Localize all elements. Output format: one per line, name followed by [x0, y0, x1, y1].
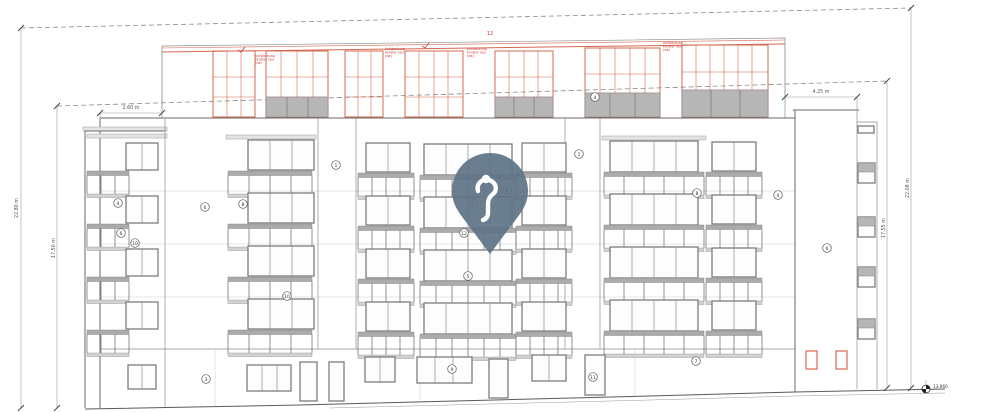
reference-marker: 10 — [283, 292, 292, 301]
reference-marker: 6 — [201, 203, 210, 212]
svg-text:8: 8 — [242, 202, 245, 208]
wing-floor-row — [87, 249, 158, 304]
dimension-label: 4.25 m — [813, 89, 830, 95]
reference-dashed-lines — [21, 8, 911, 106]
svg-text:4: 4 — [594, 95, 597, 101]
svg-text:5: 5 — [467, 274, 470, 280]
svg-text:10: 10 — [132, 241, 138, 247]
reference-marker: 9 — [448, 365, 457, 374]
new-door — [836, 351, 847, 369]
svg-text:7: 7 — [695, 359, 698, 365]
facade-floor-row — [228, 299, 762, 361]
dimension-label: 17.50 m — [51, 238, 57, 258]
reference-marker: 8 — [693, 189, 702, 198]
ground-floor — [128, 355, 605, 401]
svg-text:11: 11 — [590, 375, 596, 381]
svg-text:6: 6 — [204, 205, 207, 211]
reference-marker: 8 — [239, 200, 248, 209]
svg-text:6: 6 — [120, 231, 123, 237]
red-note-line: (rot) — [255, 61, 262, 65]
red-note-line: (rot) — [663, 48, 670, 52]
dimension-roof-setback-left: 2.60 m — [97, 50, 165, 119]
existing-windows-behind — [266, 90, 768, 117]
new-door — [806, 351, 817, 369]
elevation-sheet: 12 AufstockungFenster neu(rot)Aufstockun… — [0, 0, 981, 412]
svg-text:6: 6 — [826, 246, 829, 252]
terrain — [85, 389, 945, 409]
dimension-right-inner: 17.55 m — [881, 78, 890, 391]
red-note-line: (rot) — [385, 54, 392, 58]
svg-text:10: 10 — [284, 294, 290, 300]
dimension-left-outer: 22.80 m — [14, 25, 24, 411]
svg-text:4: 4 — [117, 201, 120, 207]
dimension-label: 22.08 m — [905, 178, 911, 198]
annex-windows — [858, 163, 875, 339]
svg-text:9: 9 — [451, 367, 454, 373]
reference-marker: 11 — [589, 373, 598, 382]
reference-marker: 7 — [692, 357, 701, 366]
svg-text:4: 4 — [777, 193, 780, 199]
roof-addition: 12 AufstockungFenster neu(rot)Aufstockun… — [162, 31, 785, 118]
benchmark-level: 13.060 — [922, 380, 948, 393]
location-pin-icon[interactable] — [452, 153, 528, 254]
svg-text:3: 3 — [205, 377, 208, 383]
revision-mark — [422, 43, 429, 48]
dimension-label: 17.55 m — [881, 218, 887, 238]
svg-text:12: 12 — [461, 231, 467, 237]
dimension-right-outer: 22.08 m — [905, 5, 914, 391]
benchmark-label: 13.060 — [933, 384, 948, 389]
reference-marker: 1 — [332, 161, 341, 170]
wing-floor-row — [87, 302, 158, 357]
reference-marker: 5 — [464, 272, 473, 281]
reference-marker: 10 — [131, 239, 140, 248]
sheet-ref-label: 12 — [487, 31, 493, 37]
right-wing — [793, 110, 877, 392]
facade-floor-row — [228, 246, 762, 308]
elevation-drawing: 12 AufstockungFenster neu(rot)Aufstockun… — [0, 0, 981, 412]
wing-floor-row — [87, 143, 158, 198]
reference-marker: 6 — [823, 244, 832, 253]
reference-marker: 4 — [114, 199, 123, 208]
svg-text:8: 8 — [696, 191, 699, 197]
reference-markers: 461068114851251084639117 — [114, 93, 832, 384]
reference-marker: 12 — [460, 229, 469, 238]
dimension-left-inner: 17.50 m — [51, 103, 60, 411]
red-note-line: (rot) — [467, 54, 474, 58]
reference-marker: 4 — [591, 93, 600, 102]
reference-marker: 3 — [202, 375, 211, 384]
reference-marker: 4 — [774, 191, 783, 200]
svg-text:1: 1 — [335, 163, 338, 169]
dimension-label: 22.80 m — [14, 198, 20, 218]
svg-text:1: 1 — [578, 152, 581, 158]
red-notes: AufstockungFenster neu(rot)AufstockungFe… — [255, 41, 683, 65]
wing-floor-row — [87, 196, 158, 251]
dimension-roof-setback-right: 4.25 m — [782, 45, 860, 110]
reference-marker: 6 — [117, 229, 126, 238]
dimension-label: 2.60 m — [123, 105, 140, 111]
reference-marker: 1 — [575, 150, 584, 159]
